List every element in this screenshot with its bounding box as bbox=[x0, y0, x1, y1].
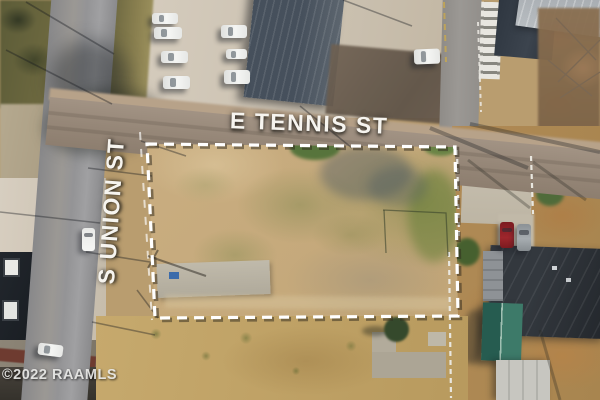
aerial-photo: E TENNIS ST S UNION ST ©2022 RAAMLS bbox=[0, 0, 600, 400]
white-car-on-s-union bbox=[82, 228, 95, 251]
dirt-track bbox=[165, 295, 451, 310]
street-label-e-tennis-st: E TENNIS ST bbox=[230, 107, 389, 140]
white-parked-car bbox=[161, 51, 188, 63]
white-shed bbox=[496, 360, 550, 400]
roof-vent bbox=[552, 266, 557, 270]
silver-car-driveway bbox=[517, 224, 531, 251]
rooftop-unit bbox=[3, 258, 20, 277]
white-parked-car bbox=[163, 76, 190, 89]
white-parked-car bbox=[226, 49, 247, 59]
bare-trees-northeast bbox=[538, 8, 600, 128]
red-car-driveway bbox=[500, 222, 514, 248]
white-van-on-street bbox=[414, 49, 441, 65]
concrete-slab-south bbox=[428, 332, 446, 346]
teal-metal-shed bbox=[481, 302, 523, 361]
tree-shadow-on-lot bbox=[368, 166, 428, 206]
gray-trailer bbox=[483, 251, 503, 301]
concrete-slab-remnant bbox=[156, 260, 270, 298]
white-parked-van bbox=[221, 25, 247, 38]
mls-watermark: ©2022 RAAMLS bbox=[2, 367, 117, 383]
white-parked-car bbox=[154, 27, 182, 39]
blue-tarp bbox=[169, 272, 179, 279]
north-side-street bbox=[439, 0, 482, 136]
concrete-slab-south bbox=[372, 352, 446, 378]
bush bbox=[454, 238, 480, 266]
roof-vent bbox=[566, 278, 571, 282]
rooftop-unit bbox=[2, 300, 19, 321]
white-parked-car bbox=[152, 13, 178, 24]
bush-south-field bbox=[384, 317, 409, 342]
white-parked-truck bbox=[224, 70, 250, 84]
